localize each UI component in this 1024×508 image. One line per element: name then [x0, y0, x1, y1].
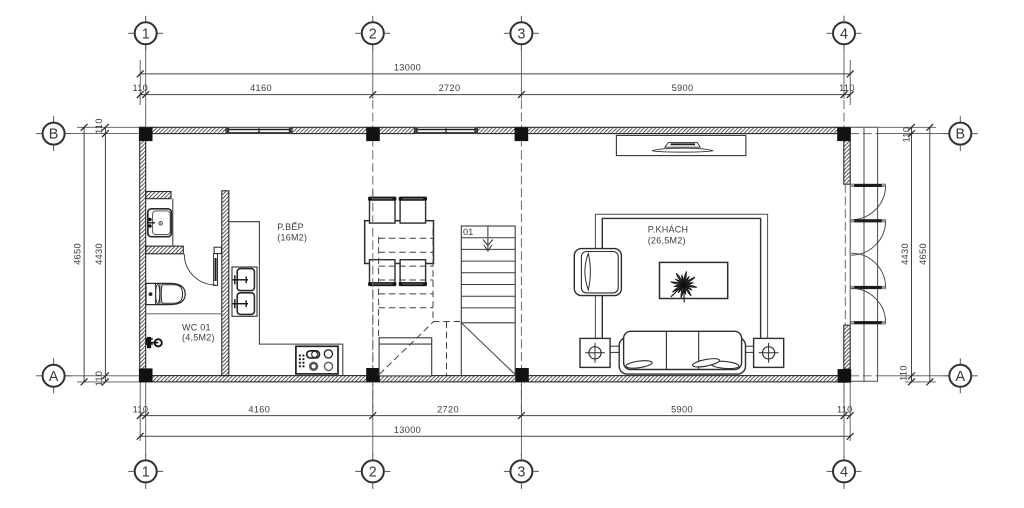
svg-text:4430: 4430 [900, 243, 910, 265]
svg-text:4650: 4650 [918, 243, 928, 265]
svg-text:2: 2 [369, 26, 377, 42]
svg-text:(26,5M2): (26,5M2) [648, 235, 686, 245]
svg-text:(16M2): (16M2) [277, 233, 307, 243]
svg-text:1: 1 [142, 26, 150, 42]
svg-text:110: 110 [837, 404, 853, 414]
svg-text:P.BẾP: P.BẾP [277, 222, 304, 232]
svg-text:B: B [49, 127, 59, 143]
svg-text:110: 110 [899, 365, 909, 381]
svg-text:B: B [955, 127, 965, 143]
svg-text:2: 2 [369, 465, 377, 481]
svg-text:110: 110 [132, 83, 148, 93]
svg-text:WC 01: WC 01 [182, 323, 211, 333]
svg-text:P.KHÁCH: P.KHÁCH [648, 224, 689, 234]
svg-text:13000: 13000 [394, 425, 421, 435]
svg-text:4430: 4430 [94, 243, 104, 265]
svg-text:3: 3 [517, 465, 525, 481]
svg-text:01: 01 [463, 227, 473, 237]
svg-text:4: 4 [840, 465, 848, 481]
svg-text:1: 1 [142, 465, 150, 481]
svg-text:3: 3 [517, 26, 525, 42]
svg-text:110: 110 [94, 118, 104, 134]
svg-text:110: 110 [133, 404, 149, 414]
svg-text:4: 4 [840, 26, 848, 42]
svg-text:5900: 5900 [672, 83, 694, 93]
svg-text:13000: 13000 [394, 63, 421, 73]
svg-text:(4,5M2): (4,5M2) [182, 333, 215, 343]
svg-text:5900: 5900 [671, 404, 693, 414]
svg-text:110: 110 [839, 83, 855, 93]
svg-text:110: 110 [902, 127, 912, 143]
svg-text:A: A [955, 369, 965, 385]
svg-text:2720: 2720 [437, 404, 459, 414]
svg-text:A: A [49, 369, 59, 385]
svg-text:4160: 4160 [250, 83, 272, 93]
svg-text:110: 110 [94, 371, 104, 387]
svg-text:2720: 2720 [439, 83, 461, 93]
svg-text:4650: 4650 [72, 243, 82, 265]
svg-text:4160: 4160 [248, 404, 270, 414]
